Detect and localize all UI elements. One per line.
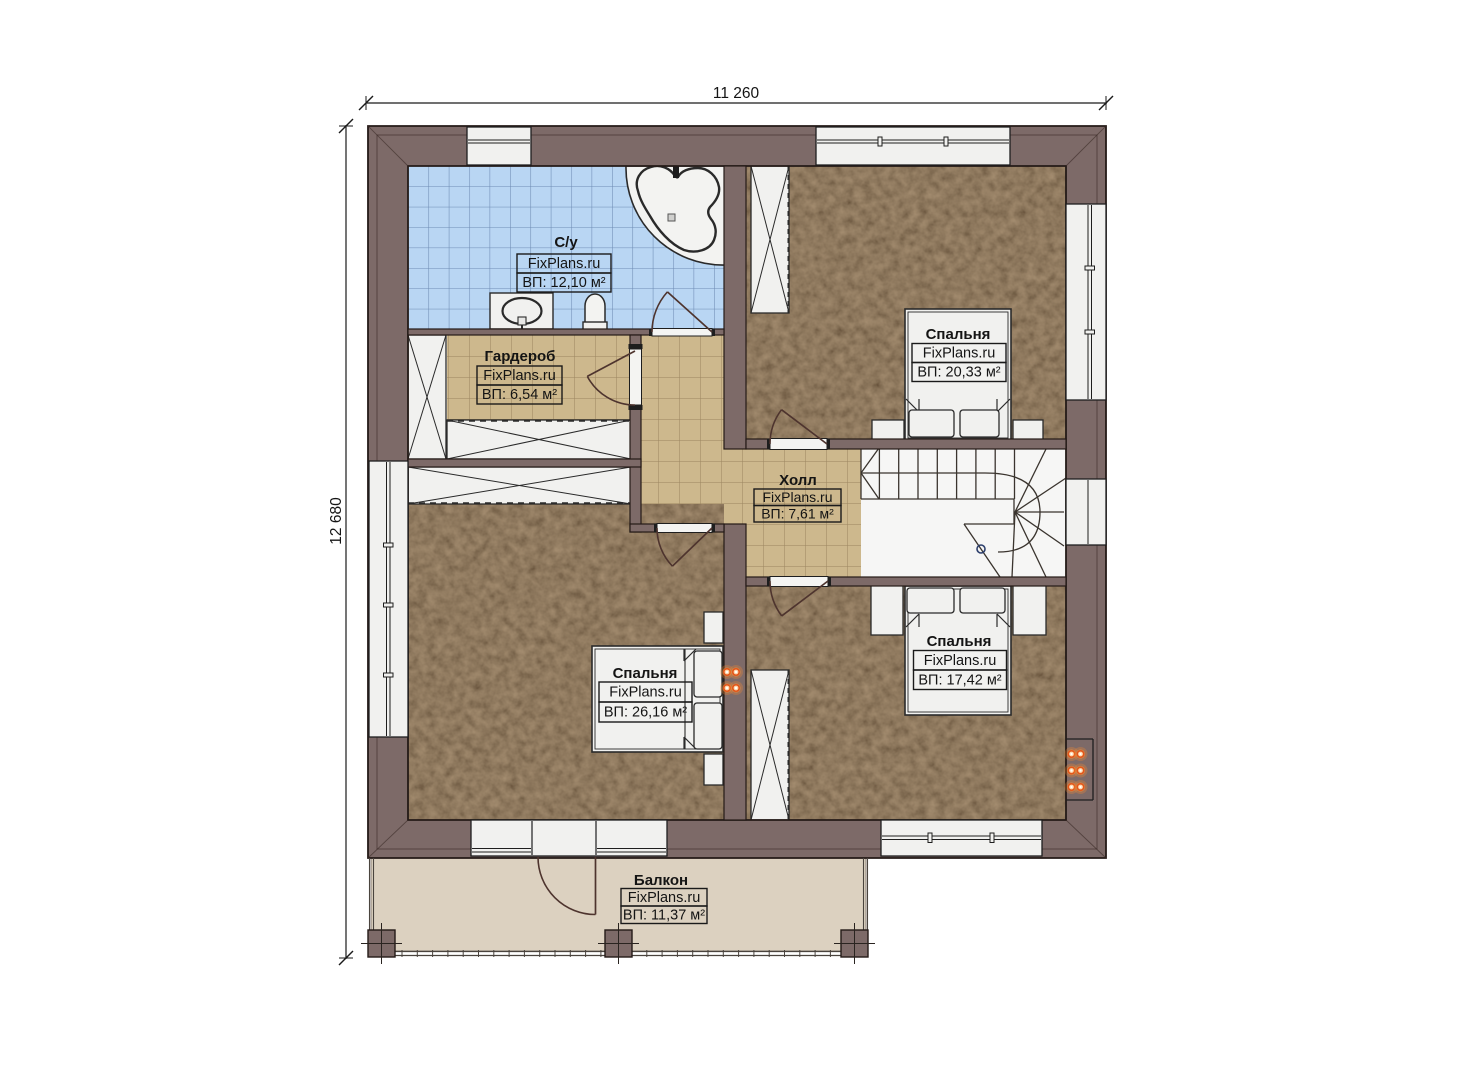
svg-text:FixPlans.ru: FixPlans.ru	[483, 368, 556, 384]
svg-text:ВП: 26,16 м²: ВП: 26,16 м²	[604, 705, 687, 721]
svg-text:ВП: 11,37 м²: ВП: 11,37 м²	[623, 908, 705, 924]
svg-text:Спальня: Спальня	[926, 326, 991, 343]
svg-text:FixPlans.ru: FixPlans.ru	[923, 346, 996, 362]
svg-text:FixPlans.ru: FixPlans.ru	[609, 685, 682, 701]
svg-text:FixPlans.ru: FixPlans.ru	[924, 653, 997, 669]
svg-text:ВП: 20,33 м²: ВП: 20,33 м²	[917, 365, 1000, 381]
svg-text:FixPlans.ru: FixPlans.ru	[628, 890, 701, 906]
svg-text:12 680: 12 680	[328, 497, 345, 545]
svg-text:Гардероб: Гардероб	[485, 348, 556, 365]
svg-text:С/у: С/у	[554, 234, 578, 251]
svg-text:FixPlans.ru: FixPlans.ru	[762, 489, 832, 505]
svg-text:Холл: Холл	[779, 472, 817, 489]
svg-text:ВП: 17,42 м²: ВП: 17,42 м²	[918, 673, 1001, 689]
svg-text:ВП: 6,54 м²: ВП: 6,54 м²	[482, 387, 557, 403]
svg-text:FixPlans.ru: FixPlans.ru	[528, 256, 601, 272]
svg-text:Спальня: Спальня	[613, 665, 678, 682]
svg-text:ВП: 7,61 м²: ВП: 7,61 м²	[761, 506, 834, 522]
svg-text:Спальня: Спальня	[927, 633, 992, 650]
svg-text:ВП: 12,10 м²: ВП: 12,10 м²	[522, 275, 605, 291]
svg-text:11 260: 11 260	[713, 85, 760, 102]
svg-text:Балкон: Балкон	[634, 872, 688, 889]
